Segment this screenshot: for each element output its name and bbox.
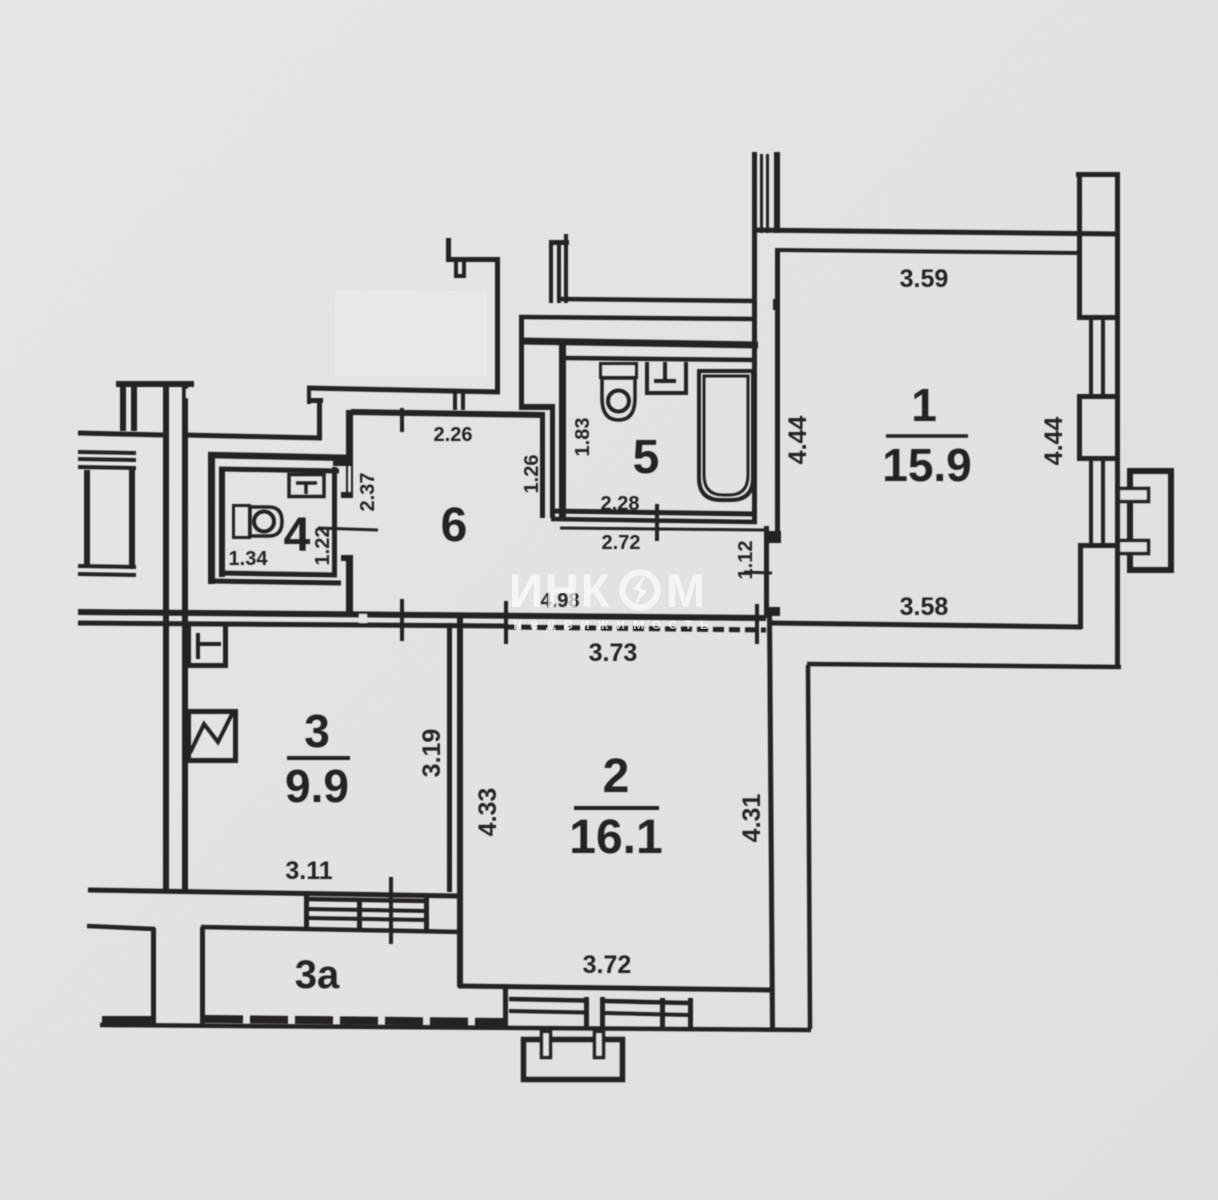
svg-text:недвижимость: недвижимость <box>513 616 717 633</box>
svg-text:1: 1 <box>911 379 937 431</box>
svg-text:9.9: 9.9 <box>285 760 349 812</box>
svg-text:16.1: 16.1 <box>569 811 662 864</box>
svg-text:1.34: 1.34 <box>229 548 269 570</box>
svg-text:4.33: 4.33 <box>474 788 502 837</box>
svg-text:15.9: 15.9 <box>882 439 972 491</box>
svg-text:М: М <box>666 564 705 617</box>
svg-text:1.12: 1.12 <box>735 541 757 580</box>
svg-text:2: 2 <box>603 750 630 803</box>
svg-text:4.44: 4.44 <box>784 416 812 465</box>
svg-text:3.11: 3.11 <box>285 857 332 885</box>
svg-text:3: 3 <box>304 705 330 757</box>
svg-text:4.31: 4.31 <box>738 794 766 843</box>
svg-text:6: 6 <box>441 499 468 552</box>
svg-text:2.37: 2.37 <box>357 473 379 512</box>
svg-text:3а: 3а <box>295 953 340 997</box>
svg-text:1.22: 1.22 <box>312 527 334 566</box>
svg-text:3.73: 3.73 <box>589 639 638 667</box>
svg-text:1.26: 1.26 <box>521 455 543 494</box>
svg-text:2.26: 2.26 <box>434 424 473 446</box>
svg-text:4: 4 <box>284 509 311 562</box>
svg-text:1.83: 1.83 <box>572 418 594 457</box>
svg-text:ИНК: ИНК <box>509 564 611 617</box>
svg-text:3.19: 3.19 <box>418 729 446 778</box>
svg-text:3.59: 3.59 <box>900 265 949 293</box>
svg-text:2.28: 2.28 <box>601 493 640 515</box>
svg-text:3.58: 3.58 <box>900 593 949 621</box>
svg-text:5: 5 <box>633 431 660 484</box>
svg-text:3.72: 3.72 <box>583 951 632 979</box>
svg-text:4.44: 4.44 <box>1040 417 1068 466</box>
svg-text:2.72: 2.72 <box>602 532 641 554</box>
